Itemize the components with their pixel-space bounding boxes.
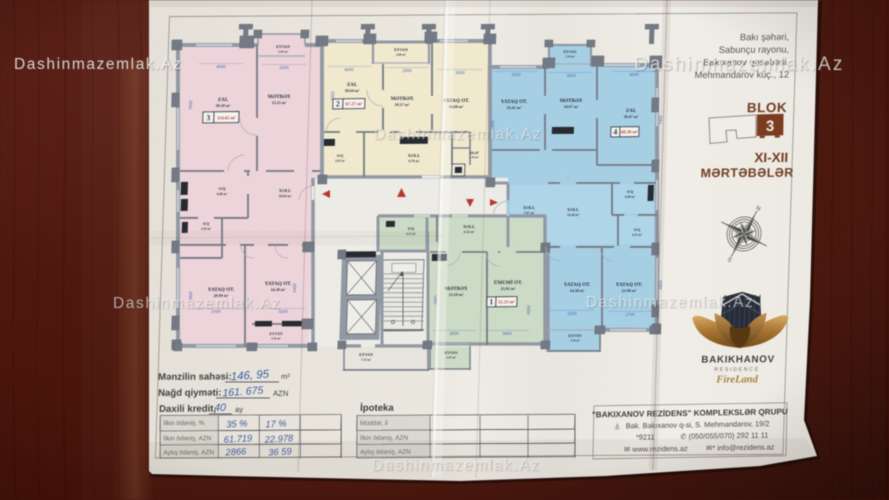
svg-text:Dashinmazemlak.Az: Dashinmazemlak.Az xyxy=(113,295,281,312)
svg-text:Dashinmazemlak.Az: Dashinmazemlak.Az xyxy=(372,457,540,474)
svg-text:Dashinmazemlak.Az: Dashinmazemlak.Az xyxy=(586,294,754,311)
svg-text:Dashinmazemlak.Az: Dashinmazemlak.Az xyxy=(634,54,845,75)
svg-text:Dashinmazemlak.Az: Dashinmazemlak.Az xyxy=(374,126,542,143)
svg-text:Dashinmazemlak.Az: Dashinmazemlak.Az xyxy=(14,56,182,73)
